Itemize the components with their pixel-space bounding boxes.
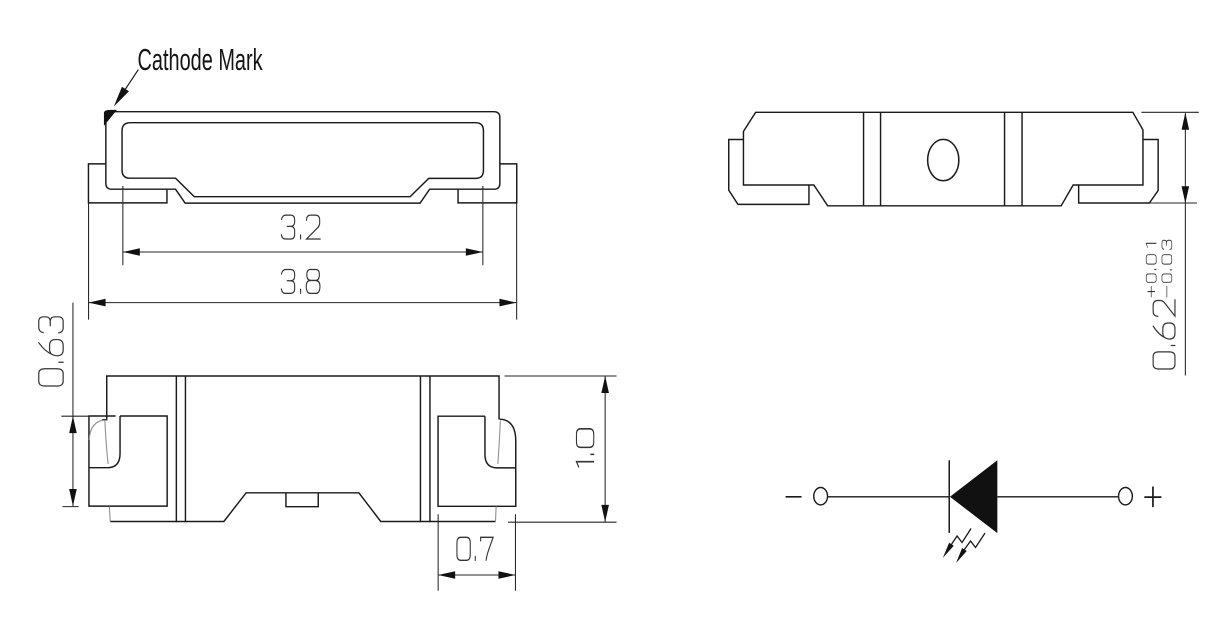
svg-text:Cathode Mark: Cathode Mark xyxy=(138,42,263,77)
